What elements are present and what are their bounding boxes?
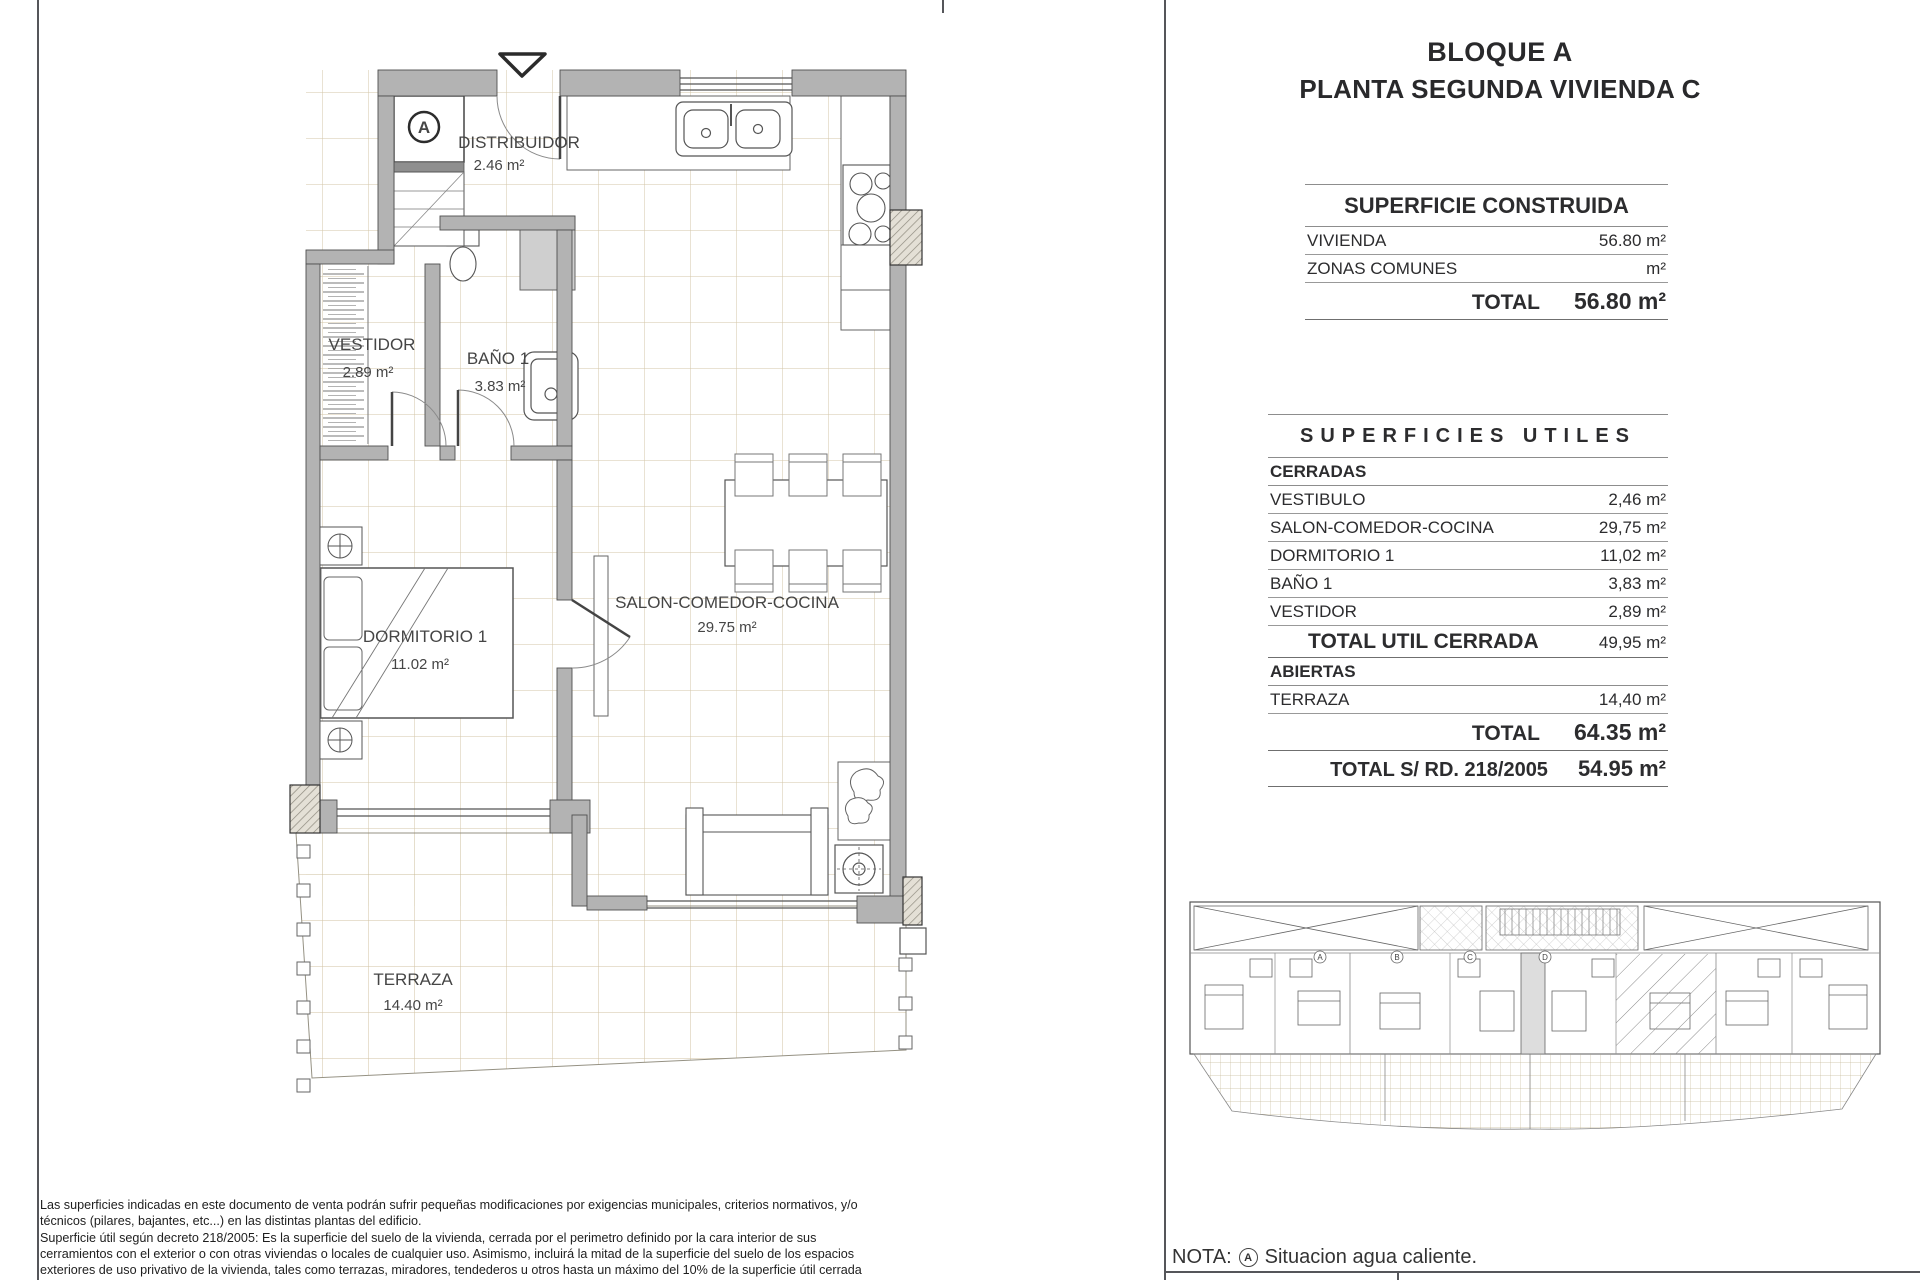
dining-table xyxy=(725,454,887,592)
site-marker-c: C xyxy=(1467,953,1473,962)
wardrobe-hatch xyxy=(322,266,368,444)
legal-disclaimer: Las superficies indicadas en este docume… xyxy=(40,1197,952,1280)
row-label: DORMITORIO 1 xyxy=(1270,546,1394,566)
label-dormitorio: DORMITORIO 1 xyxy=(363,627,487,646)
total-value: 49,95 m² xyxy=(1599,633,1666,653)
superficies-utiles-table: SUPERFICIES UTILES CERRADAS VESTIBULO 2,… xyxy=(1268,414,1668,787)
table-row: VESTIDOR 2,89 m² xyxy=(1268,598,1668,626)
plant-shelf xyxy=(838,762,892,840)
cerradas-section-label: CERRADAS xyxy=(1268,458,1668,486)
site-marker-a: A xyxy=(1317,953,1323,962)
table-row: TERRAZA 14,40 m² xyxy=(1268,686,1668,714)
area-distribuidor: 2.46 m² xyxy=(474,157,525,174)
page-title: BLOQUE A PLANTA SEGUNDA VIVIENDA C xyxy=(1250,34,1750,108)
stove-icon xyxy=(843,165,891,245)
row-label: VESTIDOR xyxy=(1270,602,1357,622)
nota-text: Situacion agua caliente. xyxy=(1265,1246,1477,1269)
sofa xyxy=(686,808,828,895)
total-value: 64.35 m² xyxy=(1574,719,1666,746)
panel-bottom-line xyxy=(1164,1271,1920,1273)
row-label: VIVIENDA xyxy=(1307,231,1386,251)
row-value: m² xyxy=(1646,259,1666,279)
table-row: VESTIBULO 2,46 m² xyxy=(1268,486,1668,514)
utiles-header: SUPERFICIES UTILES xyxy=(1268,414,1668,458)
site-marker-d: D xyxy=(1542,953,1548,962)
total-util-cerrada-row: TOTAL UTIL CERRADA 49,95 m² xyxy=(1268,626,1668,658)
table-row: VIVIENDA 56.80 m² xyxy=(1305,227,1668,255)
label-terraza: TERRAZA xyxy=(373,970,453,989)
row-label: BAÑO 1 xyxy=(1270,574,1332,594)
row-label: SALON-COMEDOR-COCINA xyxy=(1270,518,1494,538)
site-marker-b: B xyxy=(1394,953,1399,962)
total-label: TOTAL xyxy=(1472,291,1540,315)
bottom-frame-tick xyxy=(1397,1271,1399,1280)
hot-water-symbol-icon: A xyxy=(1239,1248,1258,1267)
nota-prefix: NOTA: xyxy=(1172,1246,1232,1269)
row-label: VESTIBULO xyxy=(1270,490,1365,510)
table-row: BAÑO 1 3,83 m² xyxy=(1268,570,1668,598)
construida-header: SUPERFICIE CONSTRUIDA xyxy=(1305,184,1668,227)
row-label: TERRAZA xyxy=(1270,690,1349,710)
title-block: BLOQUE A xyxy=(1250,34,1750,71)
table-row: SALON-COMEDOR-COCINA 29,75 m² xyxy=(1268,514,1668,542)
total-value: 56.80 m² xyxy=(1574,288,1666,315)
table-row: DORMITORIO 1 11,02 m² xyxy=(1268,542,1668,570)
row-value: 56.80 m² xyxy=(1599,231,1666,251)
row-value: 3,83 m² xyxy=(1608,574,1666,594)
round-side-table xyxy=(835,845,883,893)
row-value: 14,40 m² xyxy=(1599,690,1666,710)
row-value: 11,02 m² xyxy=(1600,546,1666,566)
ac-unit xyxy=(900,928,926,954)
site-plan: A B C D xyxy=(1180,893,1892,1193)
total-rd-label: TOTAL S/ RD. 218/2005 xyxy=(1330,759,1548,782)
title-floor: PLANTA SEGUNDA VIVIENDA C xyxy=(1250,71,1750,108)
row-value: 29,75 m² xyxy=(1599,518,1666,538)
total-label: TOTAL xyxy=(1472,722,1540,746)
label-distribuidor: DISTRIBUIDOR xyxy=(458,133,580,152)
label-salon: SALON-COMEDOR-COCINA xyxy=(615,593,840,612)
area-salon: 29.75 m² xyxy=(697,619,756,636)
area-vestidor: 2.89 m² xyxy=(343,364,394,381)
label-bano: BAÑO 1 xyxy=(467,349,529,368)
floor-plan: A xyxy=(0,0,1165,1280)
area-dormitorio: 11.02 m² xyxy=(391,656,449,673)
utiles-total-rd-row: TOTAL S/ RD. 218/2005 54.95 m² xyxy=(1268,751,1668,787)
tv-board xyxy=(594,556,608,716)
table-row: ZONAS COMUNES m² xyxy=(1305,255,1668,283)
area-terraza: 14.40 m² xyxy=(383,997,442,1014)
hot-water-symbol: A xyxy=(418,118,430,137)
superficie-construida-table: SUPERFICIE CONSTRUIDA VIVIENDA 56.80 m² … xyxy=(1305,184,1668,320)
row-value: 2,89 m² xyxy=(1608,602,1666,622)
plan-document-page: A xyxy=(0,0,1920,1280)
nota-line: NOTA: A Situacion agua caliente. xyxy=(1172,1246,1477,1269)
row-value: 2,46 m² xyxy=(1608,490,1666,510)
abiertas-section-label: ABIERTAS xyxy=(1268,658,1668,686)
area-bano: 3.83 m² xyxy=(475,378,526,395)
kitchen-sink xyxy=(676,102,792,156)
label-vestidor: VESTIDOR xyxy=(329,335,416,354)
construida-total-row: TOTAL 56.80 m² xyxy=(1305,283,1668,320)
row-label: ZONAS COMUNES xyxy=(1307,259,1457,279)
total-rd-value: 54.95 m² xyxy=(1578,756,1666,782)
total-label: TOTAL UTIL CERRADA xyxy=(1270,630,1539,654)
utiles-total-row: TOTAL 64.35 m² xyxy=(1268,714,1668,751)
